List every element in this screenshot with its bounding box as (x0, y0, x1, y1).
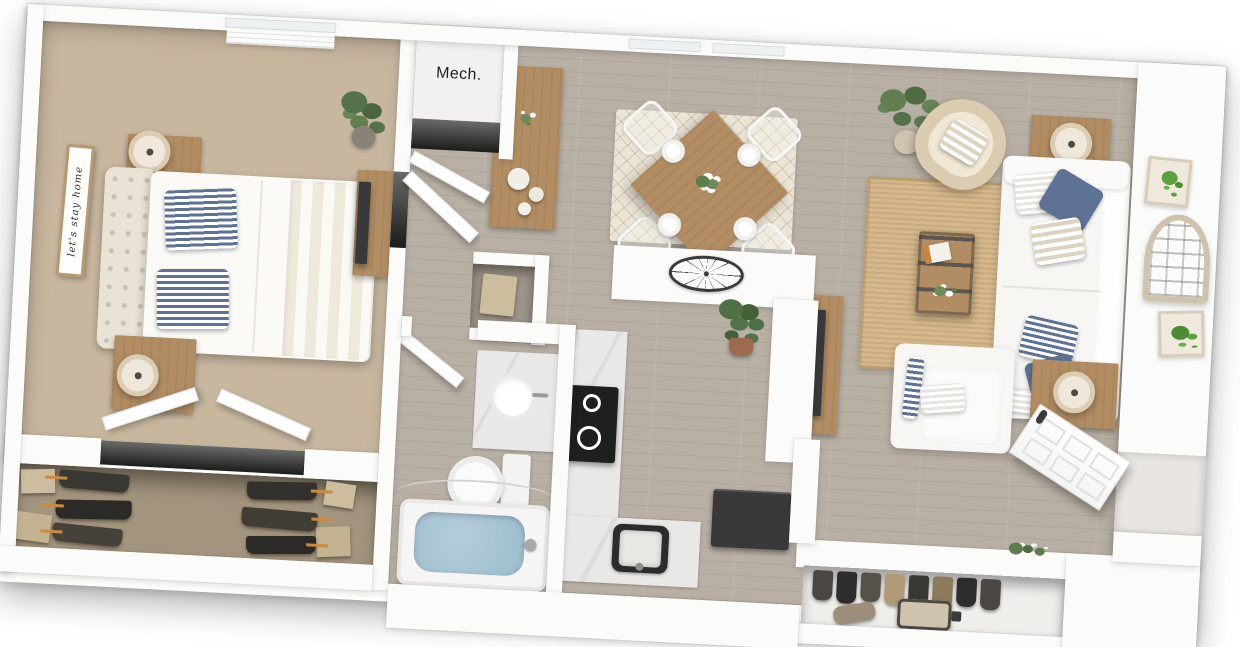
closet-box (21, 469, 55, 494)
mech-closet-shadow (411, 118, 500, 153)
bedroom-wall-sign-text: let's stay home (66, 165, 85, 257)
entry-closet-wall-east (1061, 553, 1200, 647)
refrigerator (711, 489, 792, 551)
armchair-pillow (920, 383, 966, 414)
wall-plant-frame-south (1158, 310, 1205, 357)
apartment-floorplan: let's stay home (0, 4, 1226, 647)
kitchen-plant-pot (729, 337, 754, 356)
bathtub-water (413, 511, 526, 577)
closet-box (316, 526, 351, 557)
frame-plant (1161, 170, 1178, 186)
floorplan-stage: let's stay home (0, 0, 1240, 647)
entry-coat (836, 571, 858, 604)
frame-plant (1171, 326, 1189, 340)
closet-box (13, 511, 53, 544)
hanging-clothes (55, 499, 131, 519)
entry-suitcase (897, 598, 952, 631)
exterior-wall-right-stub (1112, 532, 1201, 567)
closet-box (323, 481, 356, 509)
entry-coat (812, 570, 834, 601)
bed-pillow (164, 188, 238, 250)
closet-divider-wall-east (304, 449, 379, 482)
mech-closet-label: Mech. (414, 63, 503, 86)
entry-west-wall (789, 439, 820, 544)
storage-box (479, 273, 517, 316)
bed-pillow (157, 269, 229, 329)
entry-coat (980, 579, 1002, 611)
bathroom-faucet (532, 393, 548, 398)
entry-coat (860, 572, 881, 602)
bathroom-north-wall-west (401, 316, 412, 336)
wall-plant-frame-north (1144, 156, 1193, 208)
sofa-pillow (1030, 217, 1086, 266)
entry-suitcase-handle (951, 611, 962, 622)
entry-coat (956, 577, 977, 607)
hanging-clothes (247, 481, 317, 500)
